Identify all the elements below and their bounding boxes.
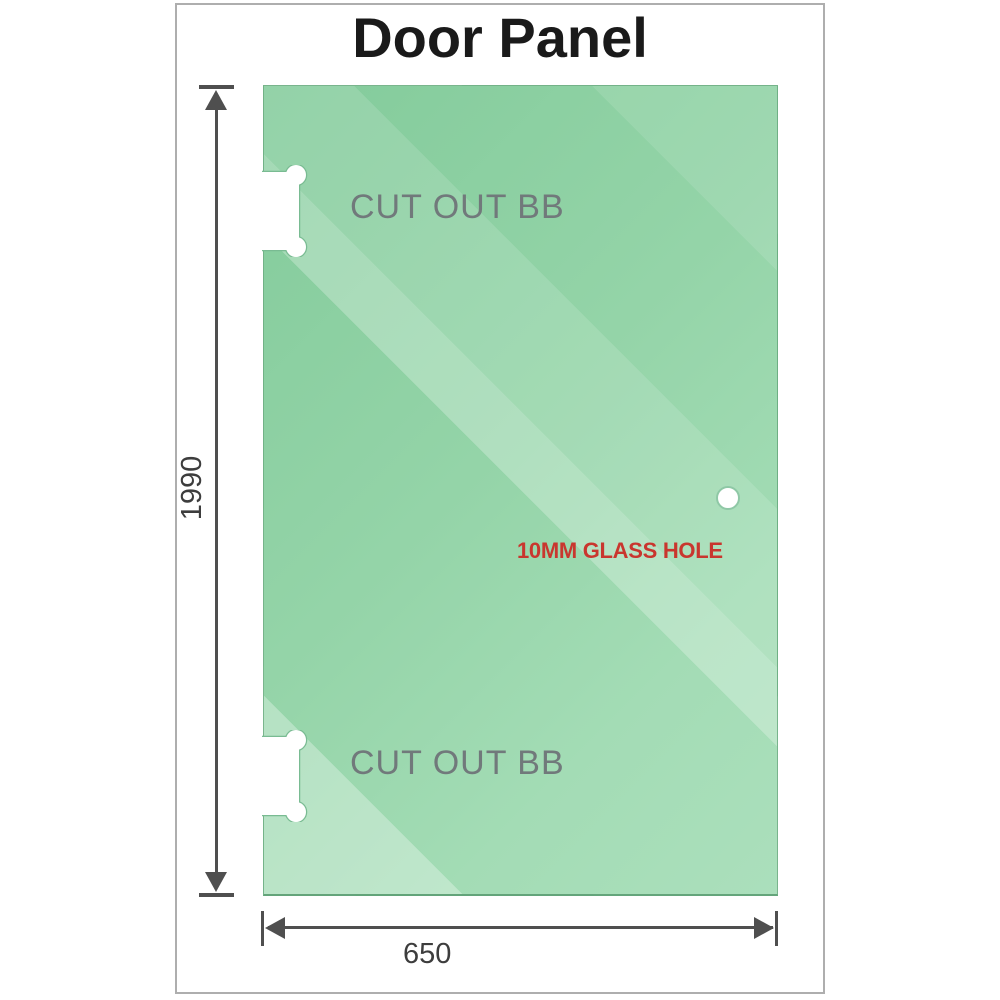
height-dimension-value: 1990: [177, 453, 207, 523]
glass-hole-icon: [716, 486, 740, 510]
glass-hole-label: 10MM GLASS HOLE: [517, 538, 723, 564]
cutout-notch-bottom-icon: [262, 730, 308, 822]
dimension-cap-top: [199, 85, 234, 89]
dimension-tick-right: [775, 911, 778, 946]
cutout-top-label: CUT OUT BB: [350, 190, 565, 224]
cutout-bottom-label: CUT OUT BB: [350, 746, 565, 780]
cutout-notch-top-icon: [262, 165, 308, 257]
width-dimension-value: 650: [403, 939, 451, 969]
arrow-down-icon: [205, 872, 227, 892]
dimension-tick-left: [261, 911, 264, 946]
page-title: Door Panel: [175, 8, 825, 68]
width-dimension-line: [268, 926, 773, 929]
height-dimension-line: [215, 95, 218, 877]
dimension-cap-bottom: [199, 893, 234, 897]
arrow-right-icon: [754, 917, 774, 939]
